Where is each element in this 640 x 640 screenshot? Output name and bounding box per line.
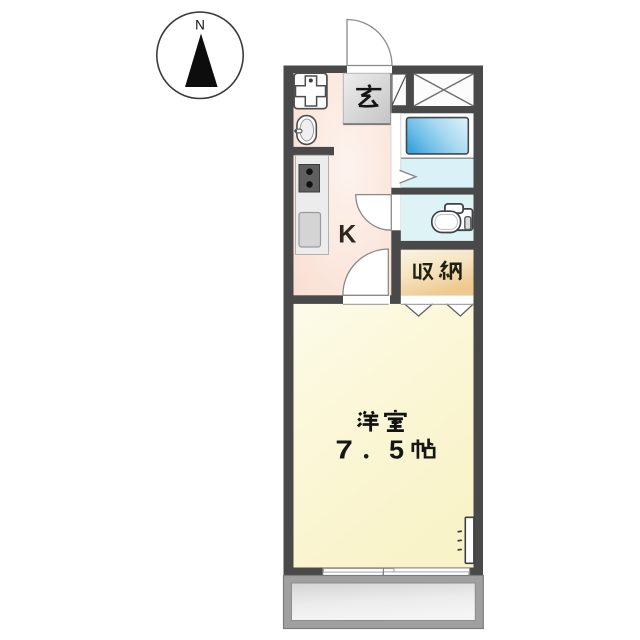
svg-text:N: N <box>195 18 205 33</box>
svg-text:K: K <box>338 220 356 248</box>
svg-text:7: 7 <box>335 436 353 464</box>
svg-text:5: 5 <box>389 436 404 464</box>
